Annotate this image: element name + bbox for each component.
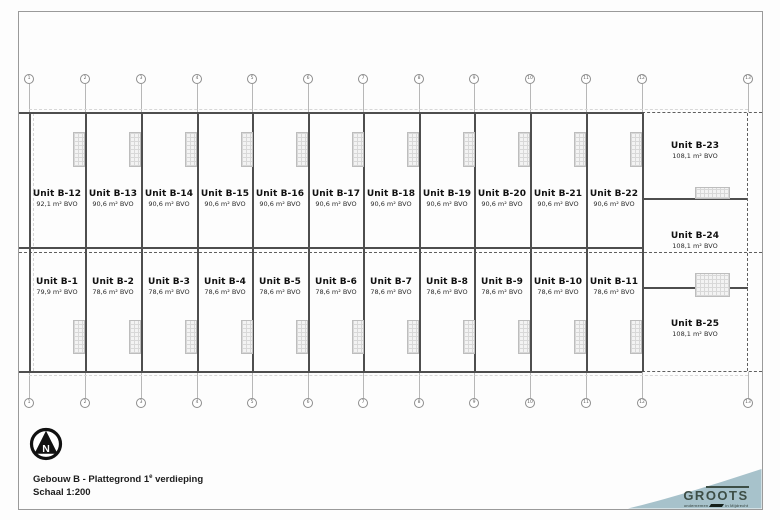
unit-name: Unit B-18 [363,189,419,199]
unit-area: 78,6 m² BVO [85,288,141,296]
grid-bubble-label: 5 [251,77,254,82]
stair [185,320,197,354]
grid-bubble-label: 3 [140,401,143,406]
stair [241,132,253,167]
wall [586,112,588,372]
logo-text-ts: TS [729,486,749,503]
grid-bubble: 5 [247,398,257,408]
grid-line [252,372,253,398]
wall [29,112,31,372]
drawing-sheet: 1 2 3 4 5 6 7 8 9 10 11 12 13 1 2 3 4 5 … [0,0,780,520]
unit-label: Unit B-1790,6 m² BVO [308,189,364,208]
corridor-line-dashed [19,252,762,253]
tagline-right: in Mijdrecht [725,503,748,508]
grid-bubble-label: 6 [307,77,310,82]
unit-area: 90,6 m² BVO [308,200,364,208]
stair [695,187,730,199]
facade-detail-line [29,375,748,376]
corridor-wall [19,247,642,249]
grid-bubble: 8 [414,398,424,408]
building-wall-bottom-dashed [642,371,762,372]
stair [407,320,419,354]
unit-name: Unit B-7 [363,277,419,287]
unit-name: Unit B-12 [29,189,85,199]
unit-area: 78,6 m² BVO [197,288,253,296]
stair [574,132,586,167]
unit-label: Unit B-1590,6 m² BVO [197,189,253,208]
grid-bubble: 1 [24,74,34,84]
grid-bubble-label: 11 [583,77,589,82]
stair [352,320,364,354]
unit-name: Unit B-8 [419,277,475,287]
grid-bubble: 1 [24,398,34,408]
grid-line [748,372,749,398]
unit-label: Unit B-1390,6 m² BVO [85,189,141,208]
stair [352,132,364,167]
grid-bubble: 6 [303,74,313,84]
grid-line [363,372,364,398]
grid-bubble-label: 1 [28,401,31,406]
unit-label: Unit B-1292,1 m² BVO [29,189,85,208]
grid-bubble-label: 8 [418,401,421,406]
unit-area: 108,1 m² BVO [642,330,748,338]
unit-label: Unit B-1690,6 m² BVO [252,189,308,208]
unit-area: 78,6 m² BVO [419,288,475,296]
stair [296,132,308,167]
stair [574,320,586,354]
title-prefix: Gebouw B - Plattegrond 1 [33,474,149,485]
grid-bubble-label: 12 [639,77,645,82]
unit-name: Unit B-1 [29,277,85,287]
unit-name: Unit B-19 [419,189,475,199]
unit-label: Unit B-478,6 m² BVO [197,277,253,296]
unit-name: Unit B-3 [141,277,197,287]
grid-bubble-label: 9 [473,77,476,82]
unit-area: 78,6 m² BVO [363,288,419,296]
stair [296,320,308,354]
unit-label: Unit B-1990,6 m² BVO [419,189,475,208]
unit-name: Unit B-5 [252,277,308,287]
stair [241,320,253,354]
unit-label: Unit B-1078,6 m² BVO [530,277,586,296]
grid-bubble-label: 4 [196,401,199,406]
drawing-title-block: Gebouw B - Plattegrond 1e verdieping Sch… [33,471,203,499]
grid-line [642,372,643,398]
stair [129,320,141,354]
unit-label: Unit B-878,6 m² BVO [419,277,475,296]
unit-name: Unit B-24 [642,231,748,241]
unit-label: Unit B-578,6 m² BVO [252,277,308,296]
wall [308,112,310,372]
grid-bubble: 8 [414,74,424,84]
grid-bubble-label: 8 [418,77,421,82]
stair [73,320,85,354]
grid-bubble-label: 10 [527,401,533,406]
wall [530,112,532,372]
stair [185,132,197,167]
grid-bubble-label: 2 [84,401,87,406]
unit-name: Unit B-6 [308,277,364,287]
grid-line [29,372,30,398]
unit-name: Unit B-17 [308,189,364,199]
grid-bubble-label: 10 [527,77,533,82]
unit-name: Unit B-21 [530,189,586,199]
building-wall-bottom [19,371,642,373]
grid-bubble: 6 [303,398,313,408]
drawing-title: Gebouw B - Plattegrond 1e verdieping [33,471,203,486]
grid-bubble: 10 [525,74,535,84]
logo-text-oo: OO [706,486,729,503]
unit-name: Unit B-13 [85,189,141,199]
grid-bubble: 3 [136,74,146,84]
grid-bubble: 3 [136,398,146,408]
grid-bubble: 7 [358,74,368,84]
unit-area: 78,6 m² BVO [586,288,642,296]
unit-name: Unit B-25 [642,319,748,329]
unit-name: Unit B-22 [586,189,642,199]
facade-detail-line [29,109,748,110]
unit-label: Unit B-778,6 m² BVO [363,277,419,296]
unit-label: Unit B-1178,6 m² BVO [586,277,642,296]
stair [463,320,475,354]
grid-bubble: 12 [637,74,647,84]
building-wall-top-dashed [642,112,762,113]
wall [141,112,143,372]
grid-bubble-label: 4 [196,77,199,82]
grid-bubble: 4 [192,398,202,408]
unit-name: Unit B-4 [197,277,253,287]
grid-bubble: 2 [80,74,90,84]
wall [197,112,199,372]
stair [463,132,475,167]
unit-name: Unit B-9 [474,277,530,287]
grid-line [308,372,309,398]
unit-area: 90,6 m² BVO [586,200,642,208]
unit-area: 90,6 m² BVO [363,200,419,208]
grid-line [474,372,475,398]
unit-name: Unit B-20 [474,189,530,199]
scale-label: Schaal 1:200 [33,486,203,499]
north-arrow-icon: N [29,427,63,461]
unit-area: 108,1 m² BVO [642,152,748,160]
unit-area: 79,9 m² BVO [29,288,85,296]
stair [630,320,642,354]
unit-name: Unit B-11 [586,277,642,287]
unit-label: Unit B-1890,6 m² BVO [363,189,419,208]
unit-label: Unit B-678,6 m² BVO [308,277,364,296]
unit-area: 90,6 m² BVO [419,200,475,208]
unit-name: Unit B-15 [197,189,253,199]
grid-bubble: 2 [80,398,90,408]
unit-area: 90,6 m² BVO [197,200,253,208]
grid-line [748,84,749,112]
facade-detail-line [33,113,34,371]
unit-label: Unit B-2090,6 m² BVO [474,189,530,208]
stair [518,132,530,167]
grid-bubble: 4 [192,74,202,84]
grid-line [197,372,198,398]
grid-line [419,372,420,398]
grid-bubble-label: 13 [745,401,751,406]
unit-area: 90,6 m² BVO [474,200,530,208]
grid-bubble-label: 7 [362,77,365,82]
grid-bubble-label: 12 [639,401,645,406]
grid-bubble-label: 2 [84,77,87,82]
unit-label: Unit B-24108,1 m² BVO [642,231,748,250]
unit-area: 78,6 m² BVO [308,288,364,296]
tagline-left: ondernemen [684,503,708,508]
unit-label: Unit B-978,6 m² BVO [474,277,530,296]
grid-line [85,372,86,398]
stair [518,320,530,354]
grid-bubble: 11 [581,74,591,84]
logo-text-gr: GR [683,488,706,503]
building-wall-top [19,112,642,114]
unit-area: 108,1 m² BVO [642,242,748,250]
unit-name: Unit B-2 [85,277,141,287]
unit-name: Unit B-16 [252,189,308,199]
tagline-swoosh-icon [709,504,724,507]
grid-bubble-label: 11 [583,401,589,406]
unit-label: Unit B-1490,6 m² BVO [141,189,197,208]
grid-bubble: 9 [469,398,479,408]
grid-line [586,372,587,398]
wall [419,112,421,372]
stair [129,132,141,167]
stair [630,132,642,167]
grid-bubble: 5 [247,74,257,84]
unit-label: Unit B-179,9 m² BVO [29,277,85,296]
wall [85,112,87,372]
grid-bubble: 13 [743,398,753,408]
unit-label: Unit B-23108,1 m² BVO [642,141,748,160]
unit-label: Unit B-378,6 m² BVO [141,277,197,296]
grid-bubble-label: 3 [140,77,143,82]
unit-label: Unit B-25108,1 m² BVO [642,319,748,338]
logo-tagline: ondernemenin Mijdrecht [672,503,760,508]
stair [407,132,419,167]
grid-bubble-label: 7 [362,401,365,406]
unit-area: 90,6 m² BVO [141,200,197,208]
unit-area: 90,6 m² BVO [85,200,141,208]
unit-area: 90,6 m² BVO [252,200,308,208]
stair [695,273,730,297]
grid-bubble: 9 [469,74,479,84]
grid-bubble: 10 [525,398,535,408]
unit-label: Unit B-2190,6 m² BVO [530,189,586,208]
unit-label: Unit B-278,6 m² BVO [85,277,141,296]
grid-bubble: 11 [581,398,591,408]
grid-bubble: 13 [743,74,753,84]
grid-bubble: 12 [637,398,647,408]
unit-name: Unit B-14 [141,189,197,199]
grid-bubble-label: 5 [251,401,254,406]
unit-area: 90,6 m² BVO [530,200,586,208]
grid-line [141,372,142,398]
grid-line [530,372,531,398]
grid-bubble: 7 [358,398,368,408]
logo-wordmark: GROOTS [672,489,760,502]
grid-bubble-label: 13 [745,77,751,82]
unit-name: Unit B-23 [642,141,748,151]
unit-area: 92,1 m² BVO [29,200,85,208]
grid-bubble-label: 6 [307,401,310,406]
grid-bubble-label: 9 [473,401,476,406]
unit-area: 78,6 m² BVO [474,288,530,296]
svg-text:N: N [42,443,50,455]
title-suffix: verdieping [152,474,203,485]
stair [73,132,85,167]
unit-name: Unit B-10 [530,277,586,287]
unit-label: Unit B-2290,6 m² BVO [586,189,642,208]
unit-area: 78,6 m² BVO [141,288,197,296]
unit-area: 78,6 m² BVO [252,288,308,296]
grid-bubble-label: 1 [28,77,31,82]
unit-area: 78,6 m² BVO [530,288,586,296]
page-border [18,11,763,510]
